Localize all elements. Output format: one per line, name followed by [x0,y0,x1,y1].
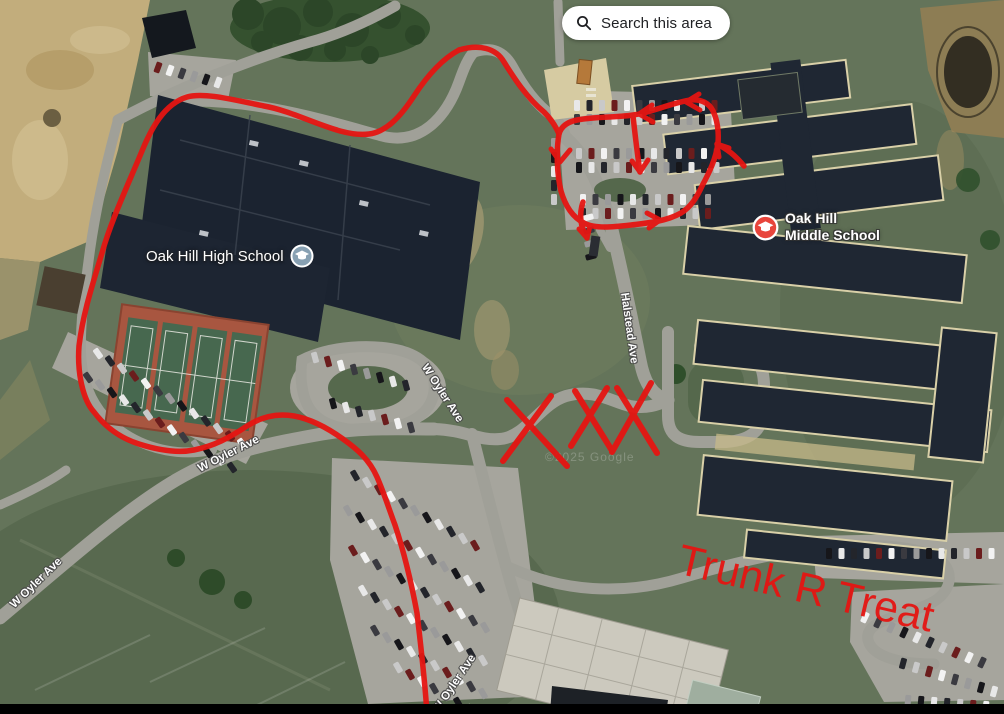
search-button-label: Search this area [601,15,712,32]
route-loop-high-school [79,50,459,714]
middle-school-label-line2: Middle School [785,227,880,244]
graduation-cap-icon [290,244,314,268]
high-school-label: Oak Hill High School [146,248,284,265]
graduation-cap-pin-icon [752,214,779,241]
middle-school-label-line1: Oak Hill [785,210,880,227]
map-canvas[interactable]: ©2025 Google Oak Hill High School Oak Hi… [0,0,1004,714]
road-closure-x-marks [503,383,657,466]
search-this-area-button[interactable]: Search this area [562,6,730,40]
poi-oak-hill-high-school[interactable]: Oak Hill High School [146,244,314,268]
search-icon [576,15,592,31]
poi-oak-hill-middle-school[interactable]: Oak Hill Middle School [752,210,880,244]
bottom-black-bar [0,704,1004,714]
